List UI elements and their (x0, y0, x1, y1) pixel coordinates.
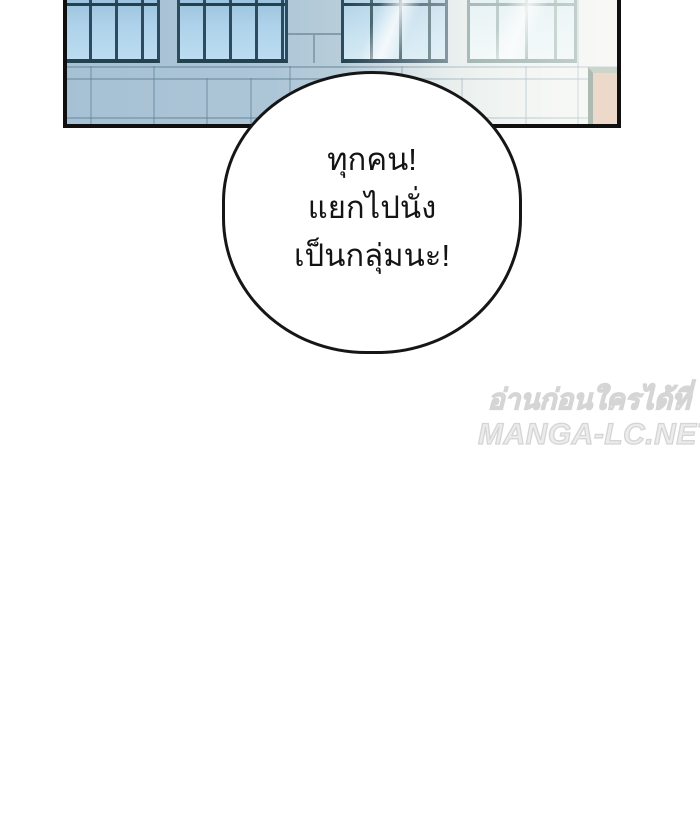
wall-joint-vertical (153, 66, 155, 124)
manga-page: ทุกคน! แยกไปนั่ง เป็นกลุ่มนะ! อ่านก่อนใค… (0, 0, 700, 829)
door-recess (588, 67, 617, 128)
wall-joint-vertical (206, 78, 208, 124)
wall-joint-horizontal (63, 66, 621, 68)
wall-seam (313, 35, 315, 63)
wall-joint-vertical (525, 66, 527, 124)
window-group-4 (467, 0, 577, 63)
site-watermark: อ่านก่อนใครได้ที่ MANGA-LC.NET (478, 382, 700, 452)
wall-joint-vertical (577, 0, 579, 124)
wall-joint-vertical (250, 78, 252, 124)
bubble-text-line-2: แยกไปนั่ง (308, 184, 437, 232)
watermark-site-line: MANGA-LC.NET (478, 418, 700, 452)
window-group-3 (341, 0, 448, 63)
bubble-text-line-3: เป็นกลุ่มนะ! (294, 232, 450, 280)
bubble-text-line-1: ทุกคน! (327, 136, 417, 184)
glass-reflection (470, 0, 574, 59)
speech-bubble: ทุกคน! แยกไปนั่ง เป็นกลุ่มนะ! (222, 71, 522, 354)
wall-joint-vertical (90, 66, 92, 124)
watermark-thai-line: อ่านก่อนใครได้ที่ (478, 382, 700, 418)
glass-reflection (344, 0, 445, 59)
window-group-1 (63, 0, 160, 63)
window-group-2 (177, 0, 288, 63)
